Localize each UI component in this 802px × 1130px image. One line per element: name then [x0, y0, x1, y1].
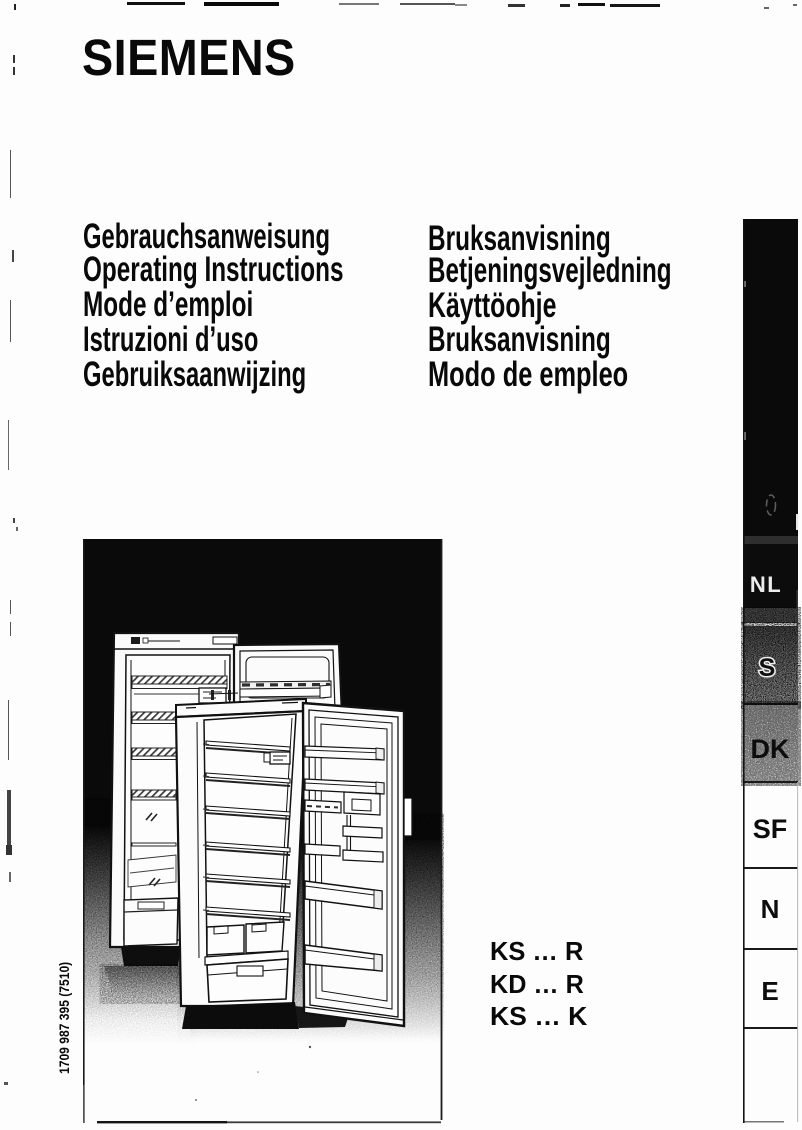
svg-text:DK: DK	[751, 734, 790, 764]
svg-text:E: E	[761, 976, 778, 1006]
svg-text:S: S	[759, 654, 776, 682]
svg-text:NL: NL	[750, 572, 782, 597]
svg-text:N: N	[761, 894, 780, 924]
svg-text:SF: SF	[753, 814, 788, 844]
